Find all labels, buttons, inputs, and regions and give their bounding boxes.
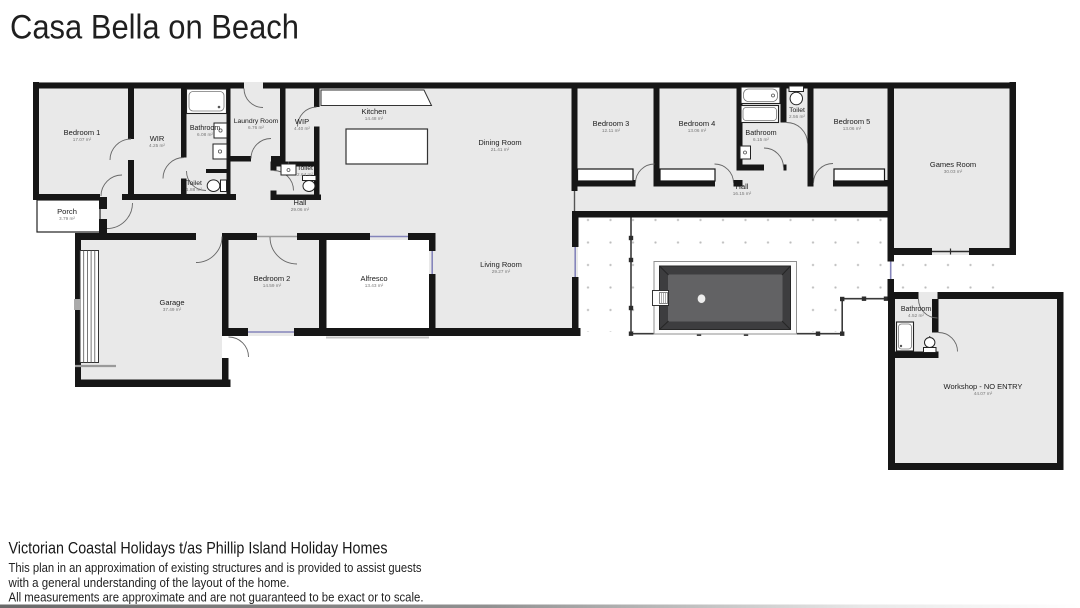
svg-text:Workshop - NO ENTRY: Workshop - NO ENTRY — [944, 382, 1023, 391]
svg-text:Laundry Room: Laundry Room — [234, 118, 279, 125]
svg-text:Porch: Porch — [57, 207, 77, 216]
svg-text:44.07 m²: 44.07 m² — [974, 391, 993, 396]
svg-text:Bedroom 5: Bedroom 5 — [834, 117, 871, 126]
svg-text:13.06 m²: 13.06 m² — [843, 126, 862, 131]
svg-text:37.49 m²: 37.49 m² — [163, 307, 182, 312]
svg-text:4.40 m²: 4.40 m² — [294, 126, 310, 131]
svg-text:6.76 m²: 6.76 m² — [248, 125, 264, 130]
svg-text:Kitchen: Kitchen — [361, 107, 386, 116]
svg-text:29.06 m²: 29.06 m² — [291, 207, 310, 212]
svg-text:WIR: WIR — [150, 134, 165, 143]
svg-text:Garage: Garage — [159, 298, 184, 307]
svg-text:Alfresco: Alfresco — [360, 274, 387, 283]
svg-text:with a general understanding o: with a general understanding of the layo… — [8, 576, 290, 590]
svg-text:Toilet: Toilet — [186, 180, 202, 187]
svg-text:4.52 m²: 4.52 m² — [908, 313, 924, 318]
svg-text:17.07 m²: 17.07 m² — [73, 137, 92, 142]
svg-text:6.08 m²: 6.08 m² — [197, 132, 213, 137]
svg-text:Bathroom: Bathroom — [190, 125, 221, 132]
svg-text:16.15 m²: 16.15 m² — [733, 191, 752, 196]
svg-text:6.15 m²: 6.15 m² — [753, 137, 769, 142]
svg-text:4.25 m²: 4.25 m² — [149, 143, 165, 148]
svg-text:13.06 m²: 13.06 m² — [688, 128, 707, 133]
svg-text:Bedroom 3: Bedroom 3 — [593, 119, 630, 128]
svg-text:Toilet: Toilet — [789, 107, 805, 114]
svg-text:Toilet: Toilet — [297, 165, 313, 172]
svg-text:14.48 m²: 14.48 m² — [365, 116, 384, 121]
svg-text:Victorian Coastal Holidays t/a: Victorian Coastal Holidays t/as Phillip … — [9, 540, 388, 558]
svg-text:3.79 m²: 3.79 m² — [59, 216, 75, 221]
svg-text:This plan in an approximation: This plan in an approximation of existin… — [9, 561, 422, 575]
svg-text:Bedroom 4: Bedroom 4 — [679, 119, 716, 128]
svg-text:Living Room: Living Room — [480, 260, 522, 269]
svg-text:30.03 m²: 30.03 m² — [944, 169, 963, 174]
svg-text:21.41 m²: 21.41 m² — [491, 147, 510, 152]
svg-text:Games Room: Games Room — [930, 160, 976, 169]
svg-text:14.59 m²: 14.59 m² — [263, 283, 282, 288]
svg-text:Casa Bella on Beach: Casa Bella on Beach — [10, 9, 299, 47]
svg-text:Bathroom: Bathroom — [745, 128, 776, 137]
svg-text:29.27 m²: 29.27 m² — [492, 269, 511, 274]
svg-text:Dining Room: Dining Room — [478, 138, 521, 147]
svg-text:12.11 m²: 12.11 m² — [602, 128, 621, 133]
svg-text:All measurements are approxima: All measurements are approximate and are… — [9, 591, 424, 605]
svg-text:1.88 m²: 1.88 m² — [186, 187, 202, 192]
svg-text:2.64 m²: 2.64 m² — [297, 172, 313, 177]
svg-text:Bathroom: Bathroom — [901, 306, 932, 313]
svg-text:Bedroom 2: Bedroom 2 — [254, 274, 291, 283]
svg-text:Hall: Hall — [294, 198, 307, 207]
svg-text:Hall: Hall — [736, 182, 749, 191]
svg-text:Bedroom 1: Bedroom 1 — [64, 128, 101, 137]
svg-text:2.56 m²: 2.56 m² — [789, 114, 805, 119]
svg-text:13.43 m²: 13.43 m² — [365, 283, 384, 288]
svg-text:WIP: WIP — [295, 117, 309, 126]
